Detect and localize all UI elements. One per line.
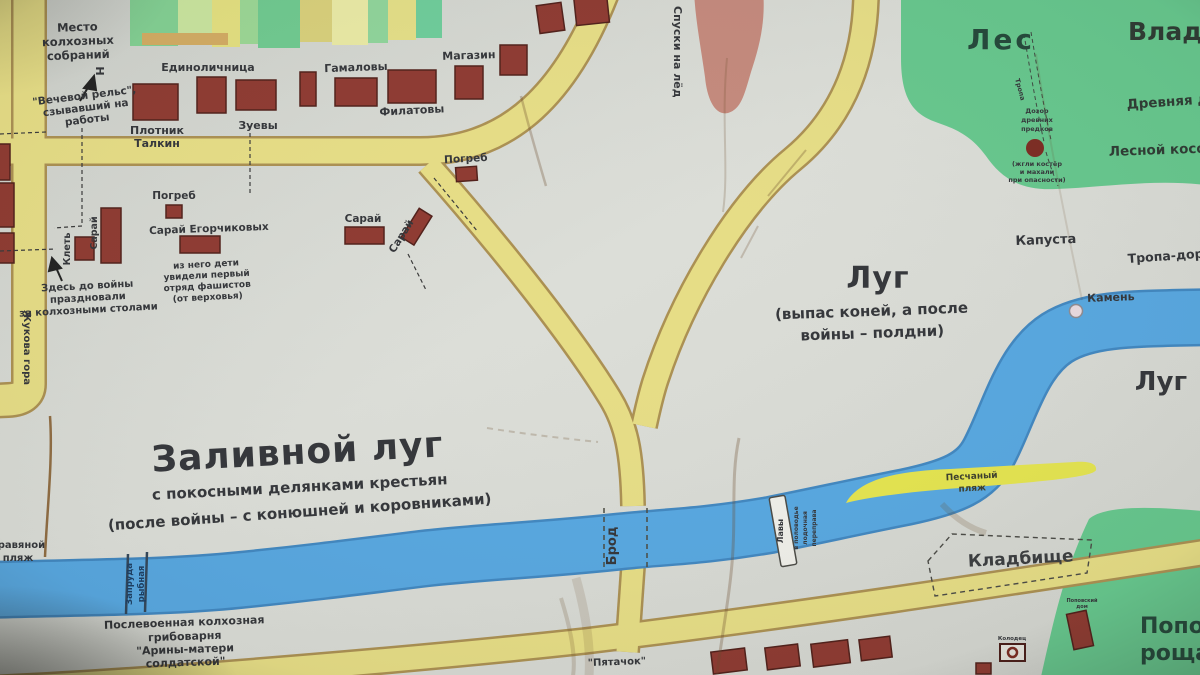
village-map-photo: Место колхозных собраний "Вечевой рельс"… (0, 0, 1200, 675)
village-map: Место колхозных собраний "Вечевой рельс"… (0, 0, 1200, 675)
photo-vignette (0, 0, 1200, 675)
